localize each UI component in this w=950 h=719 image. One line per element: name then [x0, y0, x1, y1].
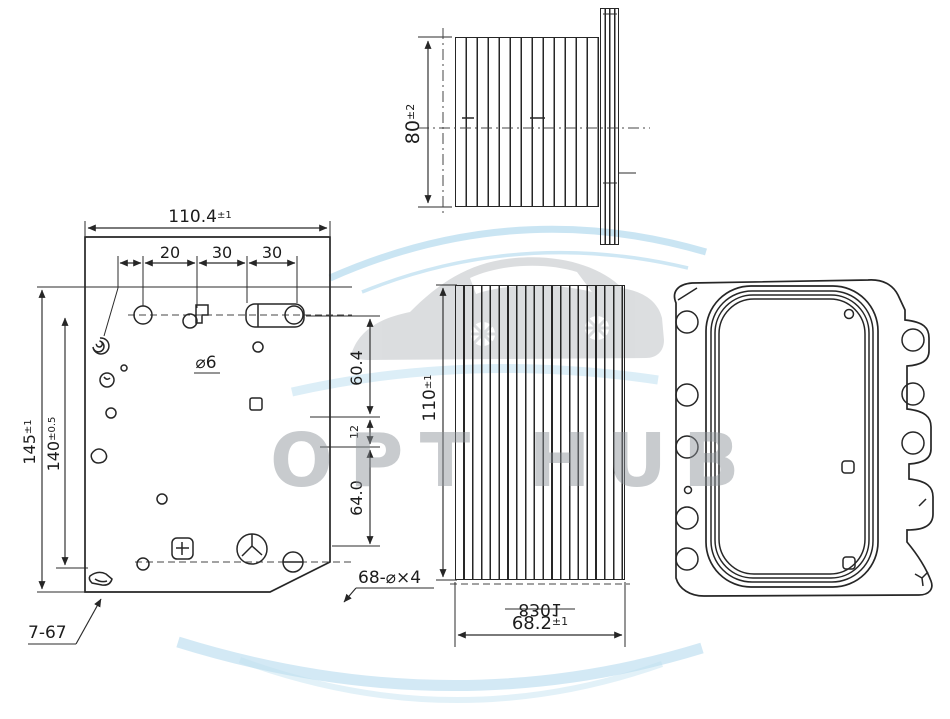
spacing-20: 20 — [160, 243, 180, 262]
plate-height-outer-dimension: 145±1 — [20, 419, 39, 464]
spacing-30a: 30 — [212, 243, 232, 262]
technical-drawing-page: 80±2 110.4±1 20 30 30 — [0, 0, 950, 719]
core-width-dimension: 68.2±1 — [512, 613, 568, 634]
hole-diameter-callout: ⌀6 — [195, 353, 216, 373]
upper-span-dimension: 60.4 — [347, 350, 366, 386]
chamfer-callout: 68-⌀×4 — [358, 568, 421, 588]
plate-height-inner-dimension: 140±0.5 — [44, 417, 63, 472]
depth-dimension: 80±2 — [402, 104, 424, 144]
plate-width-dimension: 110.4±1 — [168, 207, 231, 227]
bottom-holes-callout: 7-67 — [28, 623, 67, 643]
watermark-brand-text: OPT HUB — [270, 418, 730, 504]
drawing-linework: 80±2 110.4±1 20 30 30 — [0, 0, 950, 719]
core-height-dimension: 110±1 — [420, 374, 440, 421]
side-view: 80±2 — [402, 14, 650, 214]
spacing-30b: 30 — [262, 243, 282, 262]
